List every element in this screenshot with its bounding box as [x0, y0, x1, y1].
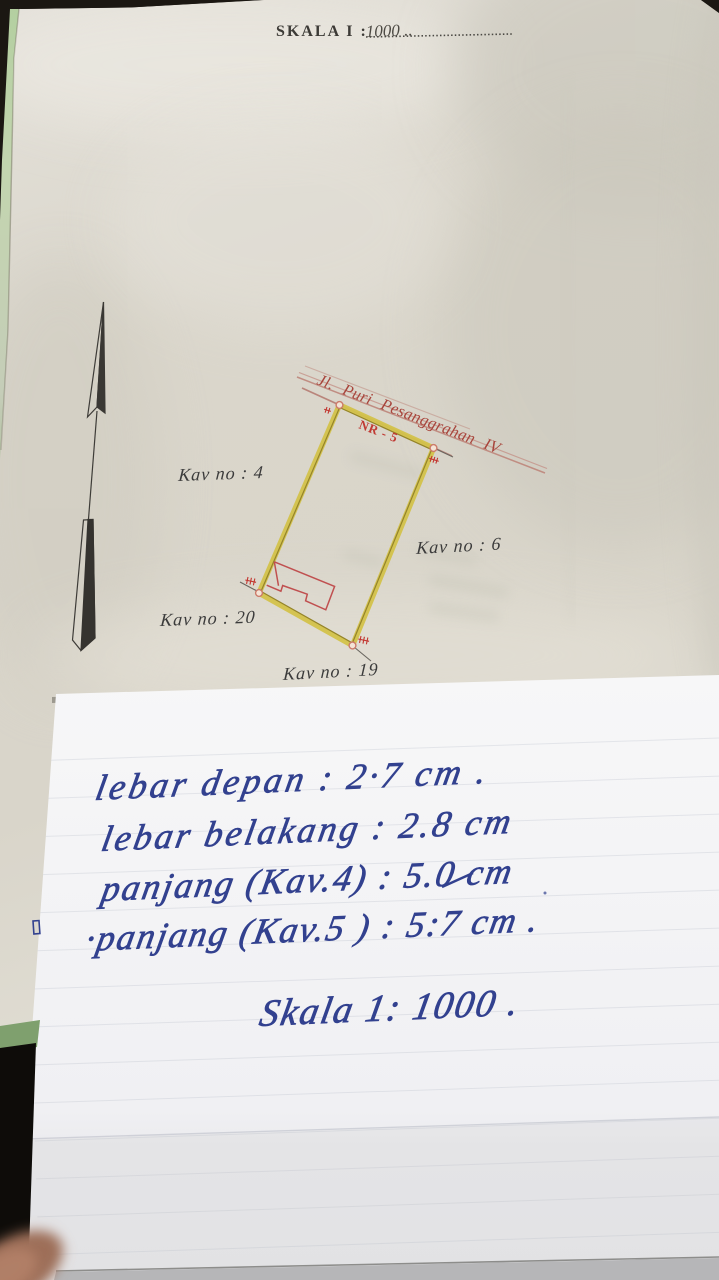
- svg-text:Kav no : 20: Kav no : 20: [159, 607, 257, 630]
- svg-text:Kav no : 4: Kav no : 4: [177, 462, 265, 485]
- svg-text:SKALA I :: SKALA I :: [276, 23, 368, 40]
- svg-text:1000 ..: 1000 ..: [365, 20, 412, 41]
